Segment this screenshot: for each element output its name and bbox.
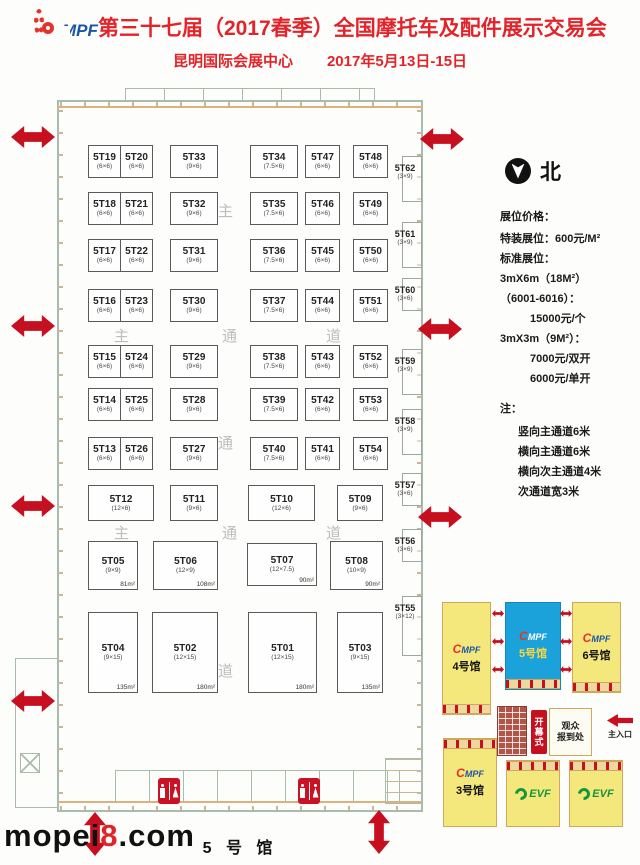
booth: 5T49 (6×6) xyxy=(353,192,388,225)
exhibition-floorplan: MPF 第三十七届（2017春季）全国摩托车及配件展示交易会 昆明国际会展中心2… xyxy=(0,0,640,865)
booth-size: (6×6) xyxy=(315,455,330,463)
cmpf-mini-logo: CMPF xyxy=(456,768,484,779)
booth: 5T28 (9×6) xyxy=(170,388,218,421)
hall-name: 6号馆 xyxy=(582,647,610,663)
booth-area: 135m² xyxy=(362,684,380,691)
booth-size: (6×6) xyxy=(363,257,378,265)
booth-size: (3×6) xyxy=(388,546,422,553)
notes-panel: 注： 竖向主通道6米 横向主通道6米 横向次主通道4米 次通道宽3米 xyxy=(500,400,640,506)
bottom-wall-accent xyxy=(57,801,423,803)
booth-size: (9×6) xyxy=(186,406,201,414)
pricing-line: 6000元/单开 xyxy=(500,373,640,385)
pricing-panel: 展位价格： 特装展位：600元/M² 标准展位： 3mX6m（18M²） （60… xyxy=(500,208,640,393)
booth: 5T48 (6×6) xyxy=(353,145,388,178)
booth: 5T33 (9×6) xyxy=(170,145,218,178)
note-line: 次通道宽3米 xyxy=(500,486,640,498)
booth-size: (6×6) xyxy=(315,210,330,218)
venue: 昆明国际会展中心 xyxy=(173,53,293,70)
booth: 5T27 (9×6) xyxy=(170,437,218,470)
booth-size: (9×6) xyxy=(186,307,201,315)
minimap-hall-4: CMPF 4号馆 xyxy=(442,602,491,715)
booth: 5T06(12×9)108m² xyxy=(153,541,218,590)
female-figure-icon xyxy=(173,784,179,799)
booth: 5T35 (7.5×6) xyxy=(250,192,298,225)
top-annex xyxy=(125,88,375,102)
booth-id: 5T46 xyxy=(311,199,334,210)
booth-size: (9×6) xyxy=(186,363,201,371)
booth-size: (6×6) xyxy=(363,210,378,218)
minimap-hall-evf-1: EVF xyxy=(506,760,560,827)
page-title: 第三十七届（2017春季）全国摩托车及配件展示交易会 xyxy=(98,16,628,42)
north-label: 北 xyxy=(540,156,561,186)
booth-size: (12×6) xyxy=(272,505,291,513)
booth: 5T53 (6×6) xyxy=(353,388,388,421)
booth-id: 5T49 xyxy=(359,199,382,210)
hall-name: 5号馆 xyxy=(519,645,547,661)
booth: 5T38 (7.5×6) xyxy=(250,345,298,378)
booth-size: (7.5×6) xyxy=(264,406,285,414)
booth-id: 5T15 xyxy=(93,352,116,363)
booth-area: 180m² xyxy=(296,684,314,691)
booth-id: 5T30 xyxy=(183,296,206,307)
booth-size: (6×6) xyxy=(129,363,144,371)
booth-id: 5T39 xyxy=(263,395,286,406)
booth-id: 5T59 xyxy=(388,356,422,366)
booth: 5T41 (6×6) xyxy=(305,437,340,470)
gate-arrow-icon xyxy=(11,126,55,148)
booth-area: 108m² xyxy=(197,581,215,588)
booth-area: 90m² xyxy=(299,577,314,584)
booth: 5T54 (6×6) xyxy=(353,437,388,470)
booth: 5T43 (6×6) xyxy=(305,345,340,378)
door-arrows xyxy=(573,682,620,692)
booth: 5T31 (9×6) xyxy=(170,239,218,272)
booth: 5T23 (6×6) xyxy=(120,289,153,322)
minimap-building xyxy=(497,706,527,756)
booth: 5T11(9×6) xyxy=(170,485,218,521)
booth-size: (9×15) xyxy=(351,654,370,662)
booth-size: (6×6) xyxy=(363,363,378,371)
side-booth: 5T55 (3×12) xyxy=(388,603,422,620)
booth-size: (6×6) xyxy=(129,406,144,414)
door-arrows xyxy=(443,704,490,714)
entrance-arrow-icon xyxy=(607,714,633,727)
booth: 5T12(12×6) xyxy=(88,485,154,521)
booth-id: 5T37 xyxy=(263,296,286,307)
booth: 5T40 (7.5×6) xyxy=(250,437,298,470)
entrance-label: 主入口 xyxy=(604,729,636,740)
gate-arrow-icon xyxy=(492,666,504,673)
booth-size: (6×6) xyxy=(97,163,112,171)
aisle-label: 通 xyxy=(218,432,234,453)
booth-id: 5T32 xyxy=(183,199,206,210)
booth-id: 5T07 xyxy=(271,555,294,566)
booth-id: 5T02 xyxy=(174,643,197,654)
booth-id: 5T52 xyxy=(359,352,382,363)
booth-id: 5T13 xyxy=(93,444,116,455)
booth: 5T42 (6×6) xyxy=(305,388,340,421)
booth-size: (6×6) xyxy=(363,406,378,414)
booth-size: (9×9) xyxy=(105,567,120,575)
pricing-line: 7000元/双开 xyxy=(500,353,640,365)
booth-id: 5T23 xyxy=(125,296,148,307)
booth-size: (6×6) xyxy=(97,307,112,315)
door-arrows xyxy=(570,761,622,771)
gate-arrow-icon xyxy=(560,666,572,673)
booth-size: (12×15) xyxy=(174,654,197,662)
pricing-line: 3mX3m（9M²）： xyxy=(500,333,640,345)
booth-size: (3×9) xyxy=(388,173,422,180)
aisle-label: 主 xyxy=(218,200,234,221)
booth-size: (7.5×6) xyxy=(264,363,285,371)
booth: 5T17 (6×6) xyxy=(88,239,120,272)
minimap-hall-evf-2: EVF xyxy=(569,760,623,827)
side-booth: 5T57 (3×6) xyxy=(388,480,422,497)
booth-size: (12×7.5) xyxy=(270,566,294,574)
aisle-label: 道 xyxy=(326,522,342,543)
booth-size: (7.5×6) xyxy=(264,307,285,315)
booth-size: (7.5×6) xyxy=(264,210,285,218)
booth: 5T47 (6×6) xyxy=(305,145,340,178)
booth-size: (9×6) xyxy=(186,505,201,513)
booth-size: (6×6) xyxy=(129,163,144,171)
note-line: 横向次主通道4米 xyxy=(500,466,640,478)
booth: 5T01(12×15)180m² xyxy=(248,612,317,693)
booth-size: (3×12) xyxy=(388,613,422,620)
booth-id: 5T11 xyxy=(183,494,205,505)
side-booth: 5T58 (3×9) xyxy=(388,416,422,433)
gate-arrow-icon xyxy=(11,315,55,337)
minimap-hall-5: CMPF 5号馆 xyxy=(505,602,561,690)
bottom-left-annex xyxy=(15,658,58,808)
booth: 5T34 (7.5×6) xyxy=(250,145,298,178)
note-line: 竖向主通道6米 xyxy=(500,426,640,438)
booth-id: 5T53 xyxy=(359,395,382,406)
booth-id: 5T08 xyxy=(345,556,368,567)
booth-id: 5T41 xyxy=(311,444,334,455)
booth-id: 5T19 xyxy=(93,152,116,163)
booth-size: (6×6) xyxy=(129,307,144,315)
wall-ticks xyxy=(60,101,420,106)
booth: 5T26 (6×6) xyxy=(120,437,153,470)
cmpf-mini-logo: CMPF xyxy=(583,633,611,644)
male-figure-icon xyxy=(160,784,166,799)
booth: 5T39 (7.5×6) xyxy=(250,388,298,421)
aisle-label: 主 xyxy=(114,325,130,346)
booth-id: 5T18 xyxy=(93,199,116,210)
booth-id: 5T56 xyxy=(388,536,422,546)
booth-id: 5T06 xyxy=(174,556,197,567)
side-booth: 5T60 (3×6) xyxy=(388,285,422,302)
booth-size: (6×6) xyxy=(97,257,112,265)
aisle-label: 主 xyxy=(114,522,130,543)
booth-size: (6×6) xyxy=(97,455,112,463)
hall-name: 3号馆 xyxy=(456,782,484,798)
booth-size: (6×6) xyxy=(129,455,144,463)
restroom-icon xyxy=(298,778,320,804)
booth-size: (9×15) xyxy=(104,654,123,662)
booth: 5T18 (6×6) xyxy=(88,192,120,225)
booth-id: 5T54 xyxy=(359,444,382,455)
booth-id: 5T01 xyxy=(271,643,294,654)
booth-id: 5T42 xyxy=(311,395,334,406)
booth-area: 135m² xyxy=(117,684,135,691)
booth: 5T15 (6×6) xyxy=(88,345,120,378)
pricing-line: 标准展位： xyxy=(500,253,640,265)
minimap-hall-6: CMPF 6号馆 xyxy=(572,602,621,693)
side-booth: 5T61 (3×9) xyxy=(388,229,422,246)
pricing-line: 特装展位：600元/M² xyxy=(500,233,640,245)
booth-id: 5T10 xyxy=(270,494,293,505)
gate-arrow-icon xyxy=(492,610,504,617)
gear-icon xyxy=(34,14,68,48)
side-booth: 5T62 (3×9) xyxy=(388,163,422,180)
booth-id: 5T26 xyxy=(125,444,148,455)
booth-id: 5T20 xyxy=(125,152,148,163)
door-arrows xyxy=(506,679,560,689)
booth: 5T08(10×9)90m² xyxy=(330,541,383,590)
booth-size: (6×6) xyxy=(129,210,144,218)
booth-id: 5T31 xyxy=(183,246,206,257)
booth-id: 5T09 xyxy=(349,494,372,505)
booth-id: 5T43 xyxy=(311,352,334,363)
pricing-line: （6001-6016）： xyxy=(500,293,640,305)
gate-arrow-icon xyxy=(560,638,572,645)
main-entrance: 主入口 xyxy=(604,714,636,740)
booth-id: 5T29 xyxy=(183,352,206,363)
cmpf-mini-logo: CMPF xyxy=(519,631,547,642)
aisle-label: 道 xyxy=(218,660,234,681)
booth-id: 5T55 xyxy=(388,603,422,613)
booth: 5T10(12×6) xyxy=(248,485,315,521)
wall-ticks xyxy=(60,806,420,811)
booth-size: (10×9) xyxy=(347,567,366,575)
booth-id: 5T17 xyxy=(93,246,116,257)
booth-id: 5T38 xyxy=(263,352,286,363)
booth: 5T09(9×6) xyxy=(337,485,383,521)
booth-grid-upper: 5T19 (6×6) 5T20 (6×6) 5T33 (9×6) 5T34 (7… xyxy=(88,145,389,484)
minimap-hall-3: CMPF 3号馆 xyxy=(443,738,497,827)
booth-id: 5T61 xyxy=(388,229,422,239)
booth-size: (3×9) xyxy=(388,426,422,433)
note-lines: 竖向主通道6米 横向主通道6米 横向次主通道4米 次通道宽3米 xyxy=(500,426,640,498)
booth-id: 5T50 xyxy=(359,246,382,257)
booth-size: (7.5×6) xyxy=(264,163,285,171)
booth: 5T29 (9×6) xyxy=(170,345,218,378)
booth-size: (9×6) xyxy=(186,455,201,463)
booth: 5T05(9×9)81m² xyxy=(88,541,138,590)
booth: 5T07(12×7.5)90m² xyxy=(247,543,317,586)
booth-size: (6×6) xyxy=(363,307,378,315)
booth-id: 5T28 xyxy=(183,395,206,406)
booth-size: (7.5×6) xyxy=(264,455,285,463)
pricing-line: 3mX6m（18M²） xyxy=(500,273,640,285)
compass-icon xyxy=(505,158,531,184)
aisle-label: 通 xyxy=(222,325,238,346)
booth-id: 5T48 xyxy=(359,152,382,163)
booth-size: (7.5×6) xyxy=(264,257,285,265)
booth-id: 5T51 xyxy=(359,296,382,307)
door-arrows xyxy=(507,761,559,771)
booth: 5T25 (6×6) xyxy=(120,388,153,421)
booth-size: (6×6) xyxy=(315,363,330,371)
booth-id: 5T05 xyxy=(102,556,125,567)
male-figure-icon xyxy=(300,784,306,799)
booth-size: (9×6) xyxy=(186,163,201,171)
gate-arrow-icon xyxy=(492,638,504,645)
booth-id: 5T24 xyxy=(125,352,148,363)
visitor-registration: 观众 报到处 xyxy=(549,708,592,756)
booth-id: 5T03 xyxy=(349,643,372,654)
gate-arrow-icon xyxy=(11,495,55,517)
booth-area: 180m² xyxy=(197,684,215,691)
female-figure-icon xyxy=(313,784,319,799)
booth-size: (3×9) xyxy=(388,366,422,373)
booth-size: (6×6) xyxy=(315,257,330,265)
booth-size: (9×6) xyxy=(352,505,367,513)
booth-id: 5T47 xyxy=(311,152,334,163)
booth: 5T37 (7.5×6) xyxy=(250,289,298,322)
notes-title: 注： xyxy=(500,400,640,416)
subtitle: 昆明国际会展中心2017年5月13日-15日 xyxy=(0,50,640,71)
side-booth: 5T56 (3×6) xyxy=(388,536,422,553)
booth-id: 5T36 xyxy=(263,246,286,257)
booth: 5T36 (7.5×6) xyxy=(250,239,298,272)
booth-id: 5T62 xyxy=(388,163,422,173)
booth-size: (6×6) xyxy=(97,406,112,414)
booth-id: 5T25 xyxy=(125,395,148,406)
header: MPF 第三十七届（2017春季）全国摩托车及配件展示交易会 昆明国际会展中心2… xyxy=(0,0,640,86)
booth-id: 5T57 xyxy=(388,480,422,490)
hall-label: 5 号 馆 xyxy=(150,834,330,858)
booth: 5T14 (6×6) xyxy=(88,388,120,421)
hall-name: 4号馆 xyxy=(452,658,480,674)
booth: 5T21 (6×6) xyxy=(120,192,153,225)
door-arrows xyxy=(444,739,496,749)
booth: 5T16 (6×6) xyxy=(88,289,120,322)
booth-size: (9×6) xyxy=(186,257,201,265)
booth: 5T30 (9×6) xyxy=(170,289,218,322)
booth-id: 5T12 xyxy=(110,494,133,505)
booth: 5T03(9×15)135m² xyxy=(337,612,383,693)
restroom-icon xyxy=(158,778,180,804)
booth-size: (12×15) xyxy=(271,654,294,662)
booth-size: (3×9) xyxy=(388,239,422,246)
booth-id: 5T60 xyxy=(388,285,422,295)
cmpf-mini-logo: CMPF xyxy=(453,644,481,655)
booth-id: 5T44 xyxy=(311,296,334,307)
top-wall-accent xyxy=(57,106,423,108)
booth-id: 5T22 xyxy=(125,246,148,257)
pricing-line: 15000元/个 xyxy=(500,313,640,325)
evf-logo: EVF xyxy=(515,788,550,800)
booth-id: 5T40 xyxy=(263,444,286,455)
booth: 5T52 (6×6) xyxy=(353,345,388,378)
booth-id: 5T27 xyxy=(183,444,206,455)
booth: 5T51 (6×6) xyxy=(353,289,388,322)
booth-id: 5T58 xyxy=(388,416,422,426)
booth-size: (9×6) xyxy=(186,210,201,218)
booth-id: 5T04 xyxy=(102,643,125,654)
gate-arrow-icon xyxy=(368,810,390,854)
booth: 5T22 (6×6) xyxy=(120,239,153,272)
booth: 5T02(12×15)180m² xyxy=(152,612,218,693)
booth-id: 5T45 xyxy=(311,246,334,257)
booth-size: (6×6) xyxy=(315,163,330,171)
booth-size: (12×9) xyxy=(176,567,195,575)
booth-id: 5T33 xyxy=(183,152,206,163)
wall-ticks xyxy=(58,110,63,800)
booth: 5T04(9×15)135m² xyxy=(88,612,138,693)
booth-id: 5T35 xyxy=(263,199,286,210)
booth: 5T44 (6×6) xyxy=(305,289,340,322)
shaft-box xyxy=(20,753,40,773)
booth-size: (12×6) xyxy=(112,505,131,513)
side-booth-strip: 5T62 (3×9) 5T61 (3×9) 5T60 (3×6) 5T59 (3… xyxy=(388,0,428,812)
pricing-lines: 特装展位：600元/M² 标准展位： 3mX6m（18M²） （6001-601… xyxy=(500,233,640,385)
opening-ceremony-banner: 开幕式 xyxy=(531,710,547,754)
booth-size: (3×6) xyxy=(388,490,422,497)
booth-id: 5T21 xyxy=(125,199,148,210)
booth-area: 81m² xyxy=(120,581,135,588)
evf-logo: EVF xyxy=(578,788,613,800)
booth-size: (6×6) xyxy=(97,210,112,218)
booth-area: 90m² xyxy=(365,581,380,588)
side-booth: 5T59 (3×9) xyxy=(388,356,422,373)
booth-id: 5T34 xyxy=(263,152,286,163)
booth-size: (6×6) xyxy=(363,455,378,463)
booth-size: (6×6) xyxy=(315,406,330,414)
booth: 5T24 (6×6) xyxy=(120,345,153,378)
booth: 5T50 (6×6) xyxy=(353,239,388,272)
booth: 5T32 (9×6) xyxy=(170,192,218,225)
booth: 5T20 (6×6) xyxy=(120,145,153,178)
booth-size: (6×6) xyxy=(129,257,144,265)
aisle-label: 通 xyxy=(222,522,238,543)
evf-swirl-icon xyxy=(576,785,593,802)
cmpf-logo: MPF xyxy=(34,14,98,48)
aisle-label: 道 xyxy=(326,325,342,346)
gate-arrow-icon xyxy=(560,610,572,617)
booth-size: (6×6) xyxy=(97,363,112,371)
north-indicator: 北 xyxy=(505,156,561,186)
evf-swirl-icon xyxy=(513,785,530,802)
booth: 5T45 (6×6) xyxy=(305,239,340,272)
booth-size: (3×6) xyxy=(388,295,422,302)
booth-id: 5T14 xyxy=(93,395,116,406)
booth: 5T19 (6×6) xyxy=(88,145,120,178)
note-line: 横向主通道6米 xyxy=(500,446,640,458)
booth-size: (6×6) xyxy=(363,163,378,171)
pricing-title: 展位价格： xyxy=(500,208,640,224)
booth: 5T46 (6×6) xyxy=(305,192,340,225)
booth-id: 5T16 xyxy=(93,296,116,307)
booth-size: (6×6) xyxy=(315,307,330,315)
booth: 5T13 (6×6) xyxy=(88,437,120,470)
